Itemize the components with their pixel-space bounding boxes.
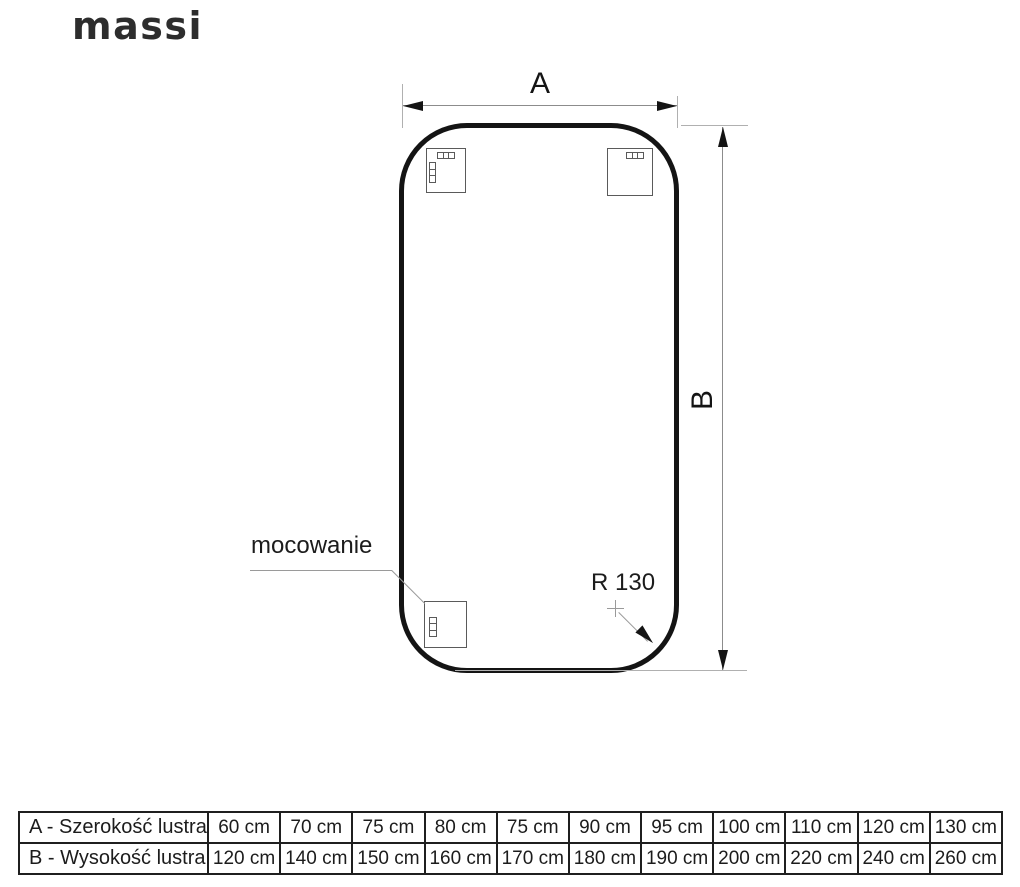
height-value: 260 cm (930, 843, 1002, 874)
width-value: 130 cm (930, 812, 1002, 843)
height-value: 180 cm (569, 843, 641, 874)
dimension-b-arrowhead-bottom (718, 650, 728, 670)
width-value: 110 cm (785, 812, 857, 843)
height-value: 200 cm (713, 843, 785, 874)
width-value: 60 cm (208, 812, 280, 843)
table-row-height: B - Wysokość lustra 120 cm 140 cm 150 cm… (19, 843, 1002, 874)
height-value: 120 cm (208, 843, 280, 874)
size-spec-table: A - Szerokość lustra 60 cm 70 cm 75 cm 8… (18, 811, 1003, 875)
width-value: 80 cm (425, 812, 497, 843)
dimension-a-label: A (522, 67, 558, 101)
bracket-clip-horizontal (437, 152, 455, 159)
mounting-bracket-top-left (426, 148, 466, 193)
mounting-bracket-bottom-left (424, 601, 467, 648)
brand-logo: massi (72, 4, 203, 48)
height-value: 150 cm (352, 843, 424, 874)
width-value: 75 cm (497, 812, 569, 843)
corner-radius-label: R 130 (591, 569, 655, 597)
radius-center-mark-vertical (615, 600, 616, 617)
width-value: 95 cm (641, 812, 713, 843)
row-label-width: A - Szerokość lustra (19, 812, 208, 843)
width-value: 120 cm (858, 812, 930, 843)
page: massi A B (0, 0, 1020, 887)
height-value: 140 cm (280, 843, 352, 874)
bracket-clip-vertical (429, 617, 437, 637)
height-value: 240 cm (858, 843, 930, 874)
dimension-b-line (722, 127, 723, 670)
width-value: 100 cm (713, 812, 785, 843)
mounting-leader-line (250, 570, 392, 571)
dimension-b-extension-top (681, 125, 748, 126)
height-value: 220 cm (785, 843, 857, 874)
dimension-b-extension-bottom (455, 670, 747, 671)
height-value: 190 cm (641, 843, 713, 874)
row-label-height: B - Wysokość lustra (19, 843, 208, 874)
table-row-width: A - Szerokość lustra 60 cm 70 cm 75 cm 8… (19, 812, 1002, 843)
height-value: 160 cm (425, 843, 497, 874)
mounting-bracket-top-right (607, 148, 653, 196)
dimension-a-arrowhead-left (403, 101, 423, 111)
dimension-a-arrowhead-right (657, 101, 677, 111)
width-value: 75 cm (352, 812, 424, 843)
mounting-label: mocowanie (251, 532, 372, 560)
dimension-a-line (403, 105, 677, 106)
dimension-b-arrowhead-top (718, 127, 728, 147)
bracket-clip-horizontal (626, 152, 644, 159)
width-value: 70 cm (280, 812, 352, 843)
dimension-b-label: B (686, 384, 718, 416)
width-value: 90 cm (569, 812, 641, 843)
bracket-clip-vertical (429, 162, 436, 183)
height-value: 170 cm (497, 843, 569, 874)
dimension-a-extension-right (677, 96, 678, 128)
